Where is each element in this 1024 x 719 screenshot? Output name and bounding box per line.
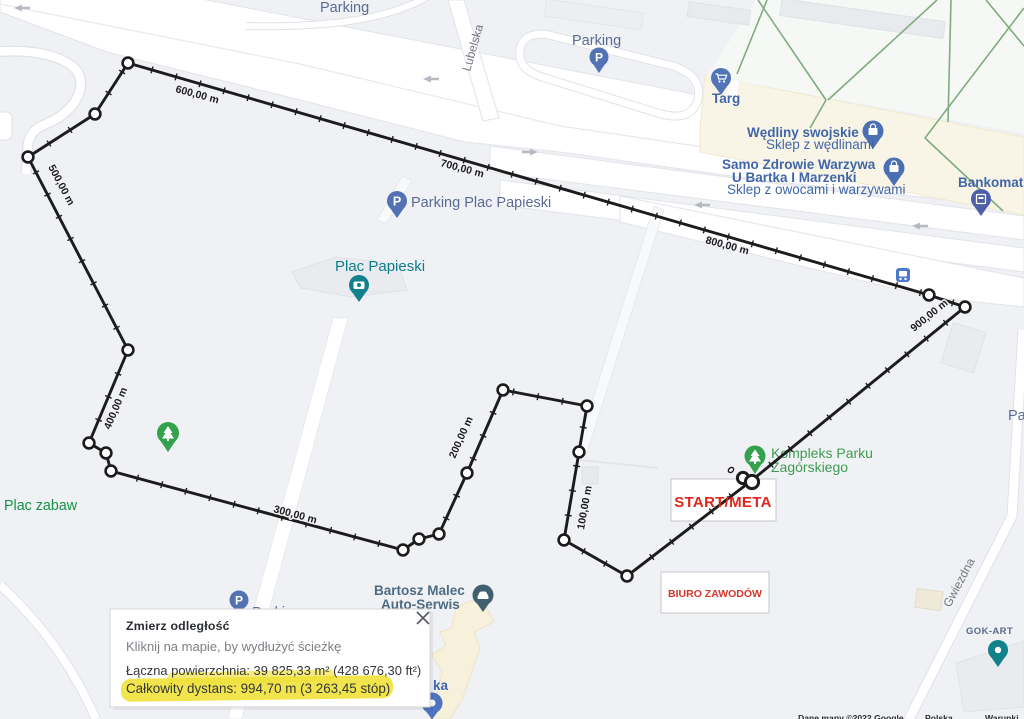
svg-text:Pa: Pa	[1008, 408, 1024, 424]
svg-text:Polska: Polska	[925, 713, 953, 719]
svg-text:P: P	[393, 195, 401, 209]
svg-text:Całkowity dystans: 994,70 m (3: Całkowity dystans: 994,70 m (3 263,45 st…	[126, 681, 390, 696]
svg-text:P: P	[235, 594, 243, 608]
svg-text:Parking Plac Papieski: Parking Plac Papieski	[411, 195, 551, 211]
svg-text:Zagórskiego: Zagórskiego	[771, 459, 848, 475]
svg-text:Plac Papieski: Plac Papieski	[335, 258, 425, 275]
svg-text:BIURO ZAWODÓW: BIURO ZAWODÓW	[668, 587, 762, 600]
svg-text:P: P	[595, 51, 603, 65]
svg-text:Dane mapy ©2022 Google: Dane mapy ©2022 Google	[798, 713, 904, 719]
svg-text:Bartosz Malec: Bartosz Malec	[374, 583, 465, 598]
svg-text:Plac zabaw: Plac zabaw	[4, 498, 78, 514]
svg-text:Zmierz odległość: Zmierz odległość	[126, 619, 230, 633]
svg-text:Parking: Parking	[320, 0, 369, 16]
svg-text:START/META: START/META	[674, 494, 771, 511]
svg-text:Łączna powierzchnia: 39 825,33: Łączna powierzchnia: 39 825,33 m² (428 6…	[126, 663, 421, 678]
svg-text:Targ: Targ	[712, 91, 740, 106]
svg-text:Sklep z wędlinami: Sklep z wędlinami	[766, 137, 874, 152]
svg-text:GOK-ART: GOK-ART	[966, 626, 1013, 637]
svg-text:ka: ka	[433, 678, 449, 693]
svg-text:Bankomat: Bankomat	[958, 175, 1024, 190]
svg-text:Sklep z owocami i warzywami: Sklep z owocami i warzywami	[727, 182, 906, 197]
svg-text:Kliknij na mapie, by wydłużyć: Kliknij na mapie, by wydłużyć ścieżkę	[126, 639, 341, 654]
svg-text:Parking: Parking	[572, 33, 621, 49]
svg-text:Warunki: Warunki	[985, 713, 1019, 719]
